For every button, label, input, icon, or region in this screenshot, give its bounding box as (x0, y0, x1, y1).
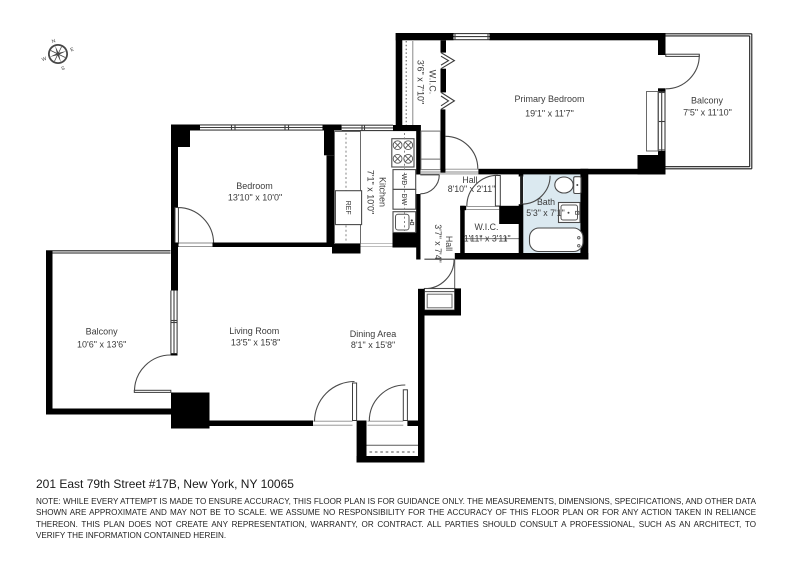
svg-text:7'1" x 10'0": 7'1" x 10'0" (366, 170, 376, 214)
svg-text:REF: REF (344, 201, 351, 215)
svg-text:DW: DW (400, 193, 407, 205)
svg-text:Bath: Bath (537, 197, 555, 207)
svg-text:W.I.C.: W.I.C. (427, 70, 437, 95)
svg-text:Living Room: Living Room (229, 326, 279, 336)
svg-text:WD: WD (400, 174, 407, 186)
svg-text:8'1" x 15'8": 8'1" x 15'8" (351, 340, 395, 350)
svg-text:Balcony: Balcony (86, 327, 119, 337)
svg-text:13'10" x 10'0": 13'10" x 10'0" (228, 193, 282, 203)
svg-text:Kitchen: Kitchen (378, 177, 388, 207)
svg-text:13'5" x 15'8": 13'5" x 15'8" (231, 338, 280, 348)
svg-text:3'7" x 7'4": 3'7" x 7'4" (433, 224, 443, 262)
svg-text:3'6" x 7'10": 3'6" x 7'10" (415, 60, 425, 104)
svg-text:Balcony: Balcony (691, 96, 724, 106)
svg-text:Dining Area: Dining Area (350, 329, 397, 339)
svg-text:7'5" x 11'10": 7'5" x 11'10" (683, 108, 732, 118)
svg-text:Bedroom: Bedroom (236, 181, 273, 191)
svg-text:Hall: Hall (444, 236, 454, 251)
svg-text:Primary Bedroom: Primary Bedroom (514, 94, 584, 104)
svg-text:1'11" x 3'11": 1'11" x 3'11" (464, 233, 511, 243)
svg-text:W.I.C.: W.I.C. (475, 222, 499, 232)
svg-text:19'1" x 11'7": 19'1" x 11'7" (525, 109, 574, 119)
svg-text:10'6" x 13'6": 10'6" x 13'6" (77, 340, 126, 350)
svg-text:5'3" x 7'1": 5'3" x 7'1" (526, 208, 564, 218)
